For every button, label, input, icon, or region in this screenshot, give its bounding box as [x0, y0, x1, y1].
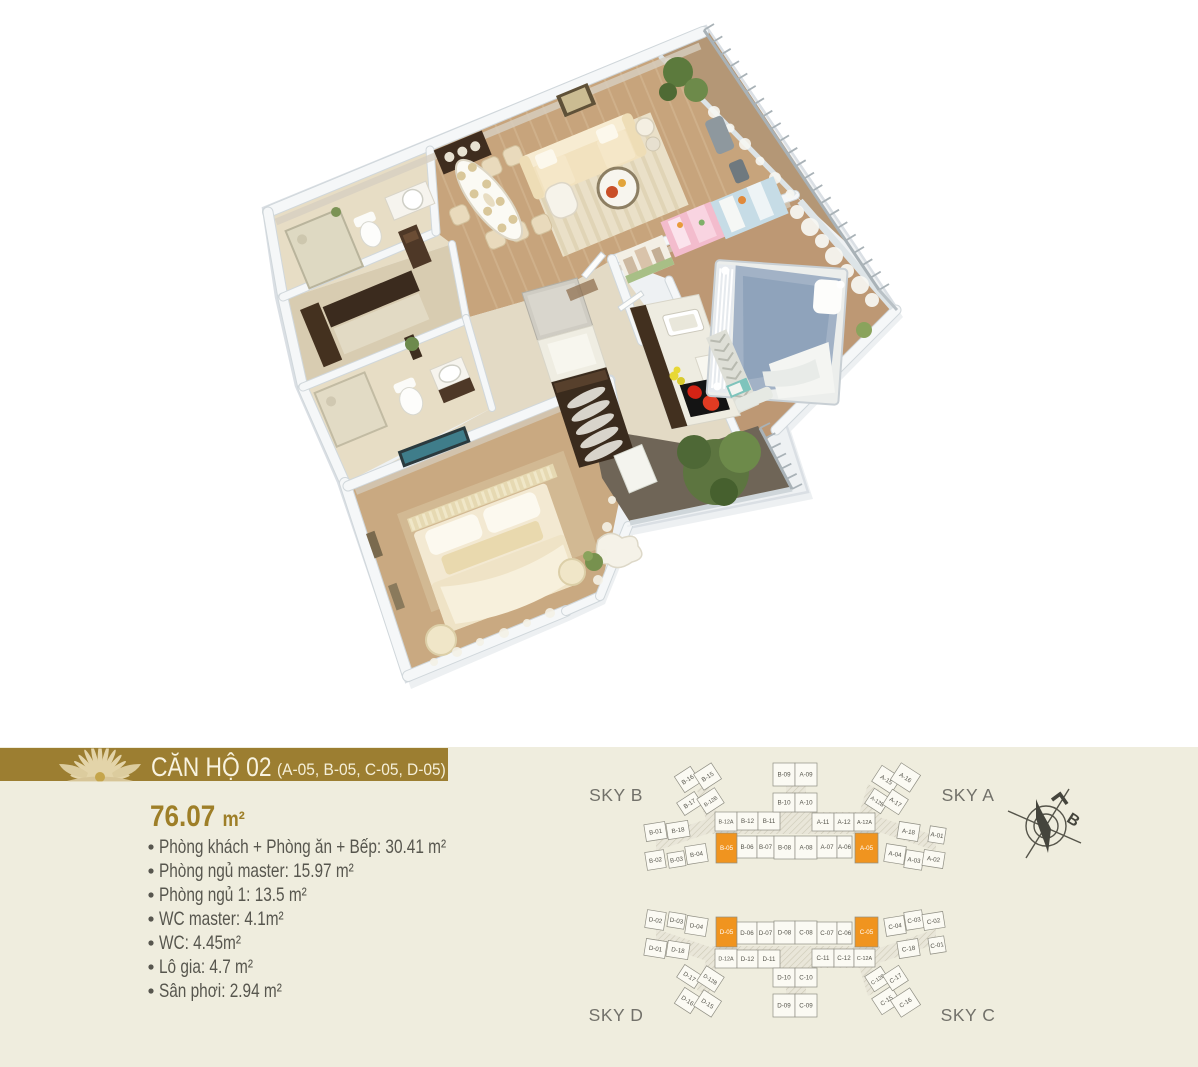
svg-text:B-11: B-11: [763, 818, 776, 825]
svg-text:Phòng ngủ 1: 13.5 m²: Phòng ngủ 1: 13.5 m²: [159, 883, 307, 905]
svg-text:B-05: B-05: [720, 845, 734, 852]
svg-text:B-06: B-06: [740, 844, 754, 851]
svg-text:B-09: B-09: [777, 772, 791, 779]
svg-text:D-05: D-05: [720, 929, 734, 936]
svg-text:B-12: B-12: [741, 818, 755, 825]
svg-text:B-08: B-08: [778, 845, 792, 852]
svg-text:Lô gia: 4.7 m²: Lô gia: 4.7 m²: [159, 955, 253, 977]
svg-text:A-12: A-12: [837, 819, 851, 826]
svg-text:(A-05, B-05, C-05, D-05): (A-05, B-05, C-05, D-05): [277, 762, 446, 780]
svg-text:A-11: A-11: [817, 819, 830, 826]
svg-text:C-07: C-07: [820, 930, 834, 937]
svg-text:WC master: 4.1m²: WC master: 4.1m²: [159, 907, 284, 929]
svg-text:C-10: C-10: [799, 975, 813, 982]
svg-text:D-09: D-09: [777, 1003, 791, 1010]
svg-text:C-08: C-08: [799, 930, 813, 937]
svg-text:D-10: D-10: [777, 975, 791, 982]
svg-text:Sân phơi: 2.94 m²: Sân phơi: 2.94 m²: [159, 979, 282, 1001]
svg-text:SKY A: SKY A: [942, 785, 995, 805]
svg-text:D-11: D-11: [763, 956, 777, 963]
svg-text:A-05: A-05: [860, 845, 874, 852]
svg-text:SKY B: SKY B: [589, 785, 643, 805]
svg-text:D-06: D-06: [740, 930, 754, 937]
svg-text:C-05: C-05: [860, 929, 874, 936]
svg-text:C-09: C-09: [799, 1003, 813, 1010]
svg-text:Phòng khách + Phòng ăn + Bếp:: Phòng khách + Phòng ăn + Bếp: 30.41 m²: [159, 835, 446, 857]
svg-text:B-12A: B-12A: [719, 820, 734, 826]
svg-text:C-12: C-12: [837, 955, 851, 962]
svg-text:D-12: D-12: [741, 956, 755, 963]
svg-text:D-07: D-07: [759, 930, 773, 937]
svg-text:D-12A: D-12A: [718, 957, 734, 963]
svg-text:A-07: A-07: [820, 844, 834, 851]
svg-text:B-10: B-10: [777, 800, 791, 807]
svg-text:A-09: A-09: [799, 772, 813, 779]
svg-text:SKY C: SKY C: [941, 1005, 996, 1025]
svg-text:D-08: D-08: [778, 930, 792, 937]
svg-text:C-06: C-06: [838, 930, 852, 937]
svg-text:A-10: A-10: [799, 800, 813, 807]
svg-text:SKY D: SKY D: [589, 1005, 644, 1025]
svg-text:C-11: C-11: [817, 955, 831, 962]
svg-text:WC: 4.45m²: WC: 4.45m²: [159, 931, 241, 953]
svg-text:B-07: B-07: [759, 844, 773, 851]
svg-text:A-06: A-06: [838, 844, 852, 851]
svg-text:A-12A: A-12A: [857, 820, 872, 826]
svg-text:C-12A: C-12A: [857, 956, 873, 962]
svg-text:CĂN HỘ 02: CĂN HỘ 02: [151, 751, 272, 782]
svg-text:A-08: A-08: [799, 845, 813, 852]
svg-text:Phòng ngủ master: 15.97 m²: Phòng ngủ master: 15.97 m²: [159, 859, 354, 881]
